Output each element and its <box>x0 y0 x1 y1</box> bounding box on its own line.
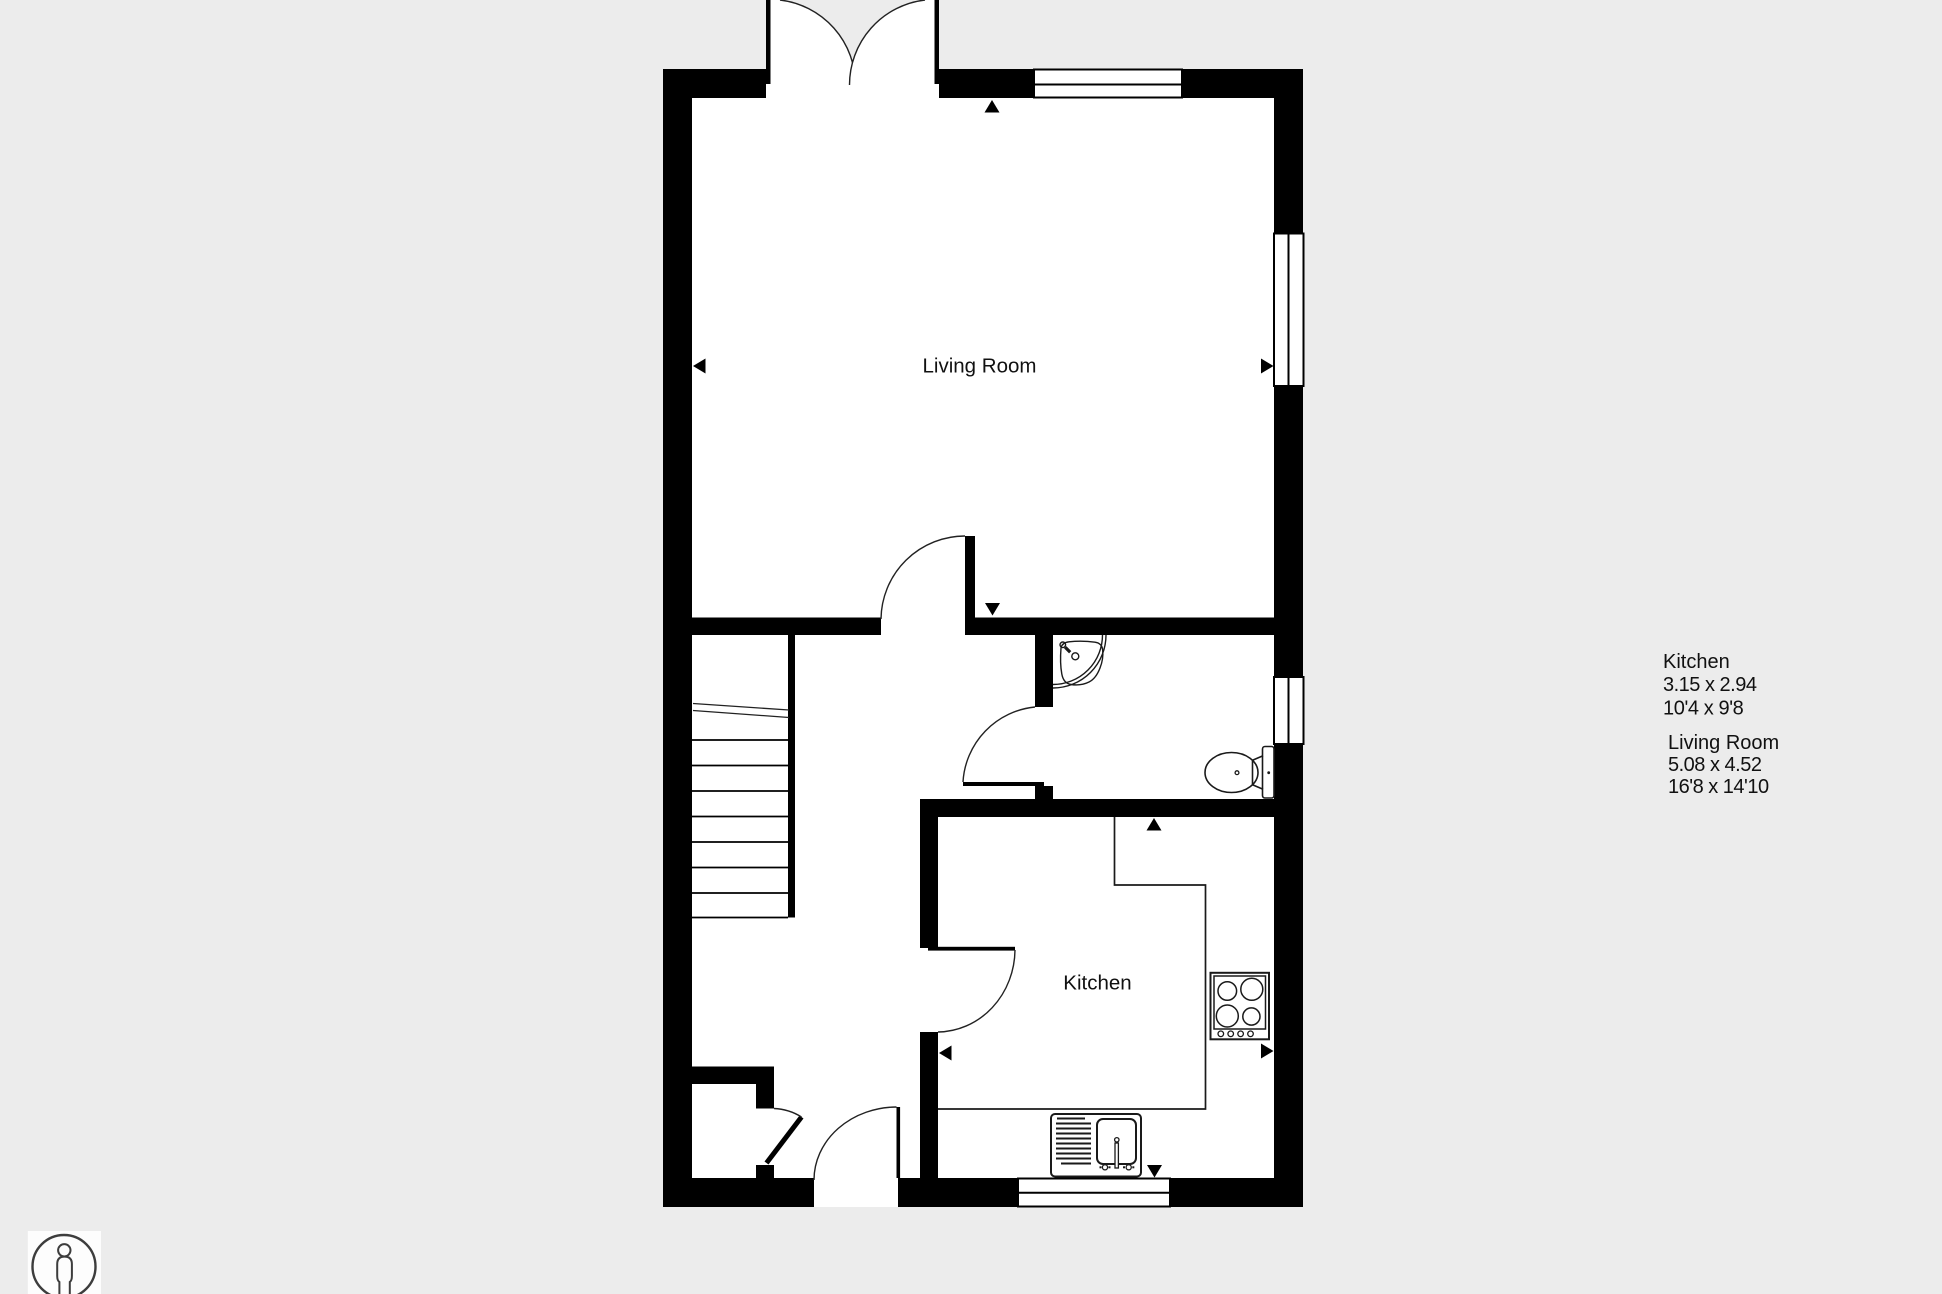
svg-text:16'8 x 14'10: 16'8 x 14'10 <box>1668 776 1769 798</box>
svg-text:Living Room: Living Room <box>1668 732 1779 754</box>
svg-text:3.15 x 2.94: 3.15 x 2.94 <box>1663 674 1757 696</box>
svg-text:Kitchen: Kitchen <box>1063 972 1131 995</box>
svg-text:10'4 x 9'8: 10'4 x 9'8 <box>1663 698 1744 720</box>
svg-text:5.08 x 4.52: 5.08 x 4.52 <box>1668 754 1762 776</box>
svg-text:Living Room: Living Room <box>923 355 1037 378</box>
svg-text:Kitchen: Kitchen <box>1663 651 1730 673</box>
